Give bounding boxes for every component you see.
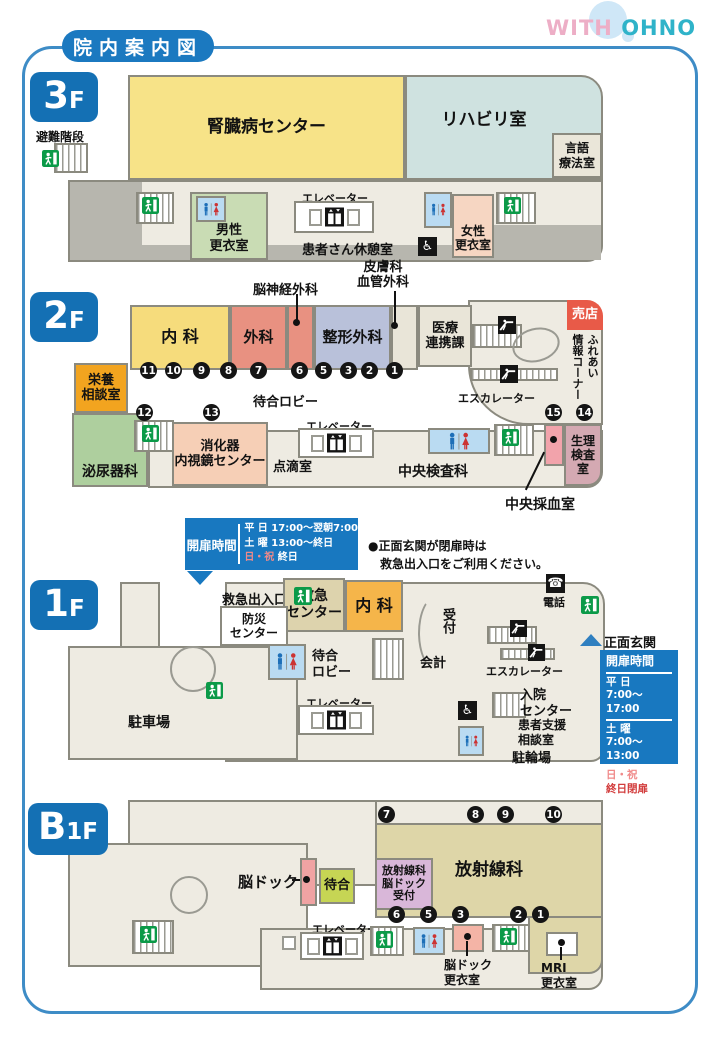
hours-title: 開扉時間 [606,654,672,674]
room-disaster-center: 防災センター [220,606,288,646]
cashier-label: 会計 [420,652,446,671]
bicycle-parking-label: 駐輪場 [512,747,551,766]
wall-block [492,225,601,247]
escalator-icon [500,365,518,383]
waiting-lobby-label-2f: 待合ロビー [253,391,318,410]
elevator-icon [327,709,346,731]
mri-locker-label: MRI更衣室 [541,961,577,991]
iv-room-label: 点滴室 [273,456,312,475]
room-emergency-center: 救急センター [283,578,345,632]
exit-icon [376,931,393,948]
callout-dot [391,322,398,329]
exam-room-number: 7 [250,362,267,379]
exam-room-number: 7 [378,806,395,823]
floor-label-1f: 1F [30,580,98,630]
exit-icon [294,587,312,605]
phone-label: 電話 [543,594,565,610]
exit-icon [42,150,59,167]
exam-room-number: 2 [510,906,527,923]
exam-room-number: 11 [140,362,157,379]
corridor-b1f-north [375,800,603,825]
exam-room-number: 9 [497,806,514,823]
stairs-1f-mid [372,638,404,680]
room-endoscopy-center: 消化器内視鏡センター [172,422,268,486]
room-surgery: 外科 [230,305,287,370]
info-corner-label-1: ふれあい [584,334,600,396]
restroom-icon [196,196,226,222]
escalator-icon [498,316,516,334]
main-entrance-marker [580,634,602,646]
room-neurosurgery [287,305,314,370]
exam-room-number: 5 [420,906,437,923]
exam-room-number: 3 [340,362,357,379]
evacuation-stairs-label: 避難階段 [36,128,84,145]
parking-label: 駐車場 [128,712,170,732]
room-speech-therapy: 言語療法室 [552,133,602,178]
patient-support-label: 患者支援相談室 [518,718,566,748]
exam-room-number: 8 [467,806,484,823]
restroom-icon [428,428,490,454]
exam-room-number: 12 [136,404,153,421]
holiday-label: 日・祝 [606,769,672,783]
callout-dot [303,876,310,883]
callout-dot [464,933,471,940]
brain-dock-locker-label: 脳ドック更衣室 [444,958,492,988]
exit-icon [581,596,599,614]
room-physiology-lab: 生理検査室 [564,424,602,486]
callout-line [466,941,468,956]
escalator-label-2f: エスカレーター [458,390,535,406]
exit-icon [500,928,517,945]
room-nutrition-consultation: 栄養相談室 [74,363,128,413]
callout-dot [550,436,557,443]
room-orthopedics: 整形外科 [314,305,391,370]
elevator-1f [298,705,374,735]
room-internal-medicine-1f: 内 科 [345,580,403,632]
neurosurgery-callout-label: 脳神経外科 [253,279,318,298]
blood-collection-label: 中央採血室 [505,494,575,514]
pillar-graphic [170,876,208,914]
logo-with-text: WITH [546,16,613,40]
with-ohno-logo: WITH OHNO [546,16,696,40]
room-kidney-disease-center: 腎臓病センター [128,75,405,180]
entrance-notice: ●正面玄関が閉扉時は救急出入口をご利用ください。 [368,537,548,573]
room-blood-collection [544,424,564,466]
restroom-icon [424,192,452,228]
hospital-floor-guide: 院内案内図 WITH OHNO 3F 避難階段 腎臓病センター リハビリ室 言語… [0,0,724,1039]
wall-block [70,182,142,260]
callout-line [560,947,562,960]
restroom-icon [268,644,306,680]
exit-icon [504,197,521,214]
restroom-icon [458,726,484,756]
holiday-closed: 終日閉扉 [606,783,672,797]
elevator-icon [323,935,342,957]
brain-dock-label: 脳ドック [238,871,298,892]
room-womens-locker: 女性更衣室 [452,194,494,258]
floor-3f-number: 3 [43,72,69,120]
exam-room-number: 15 [545,404,562,421]
exit-icon [502,429,519,446]
restroom-icon [413,927,445,955]
callout-line [296,294,298,322]
exam-room-number: 10 [545,806,562,823]
elevator-2f [298,428,374,458]
room-internal-medicine-2f: 内 科 [130,305,230,370]
room-medical-cooperation: 医療連携課 [418,305,472,367]
waiting-lobby-label-1f: 待合ロビー [312,649,351,682]
exit-icon [142,197,159,214]
exit-icon [140,926,157,943]
room-shop: 売店 [567,300,603,330]
elevator-3f [294,201,374,233]
room-waiting-b1f: 待合 [319,868,355,904]
exam-room-number: 6 [388,906,405,923]
exam-room-number: 2 [361,362,378,379]
exam-room-number: 6 [291,362,308,379]
escalator-icon [528,644,545,661]
exam-room-number: 1 [386,362,403,379]
door-hours-sign-emergency: 開扉時間 平 日 17:00〜翌朝7:00 土 曜 13:00〜終日 日・祝 終… [185,518,358,570]
patients-lounge-label: 患者さん休憩室 [302,239,393,258]
exit-icon [206,682,223,699]
exam-room-number: 13 [203,404,220,421]
floor-label-2f: 2F [30,292,98,342]
exam-room-number: 5 [315,362,332,379]
exam-room-number: 8 [220,362,237,379]
wheelchair-icon: ♿ [458,701,477,720]
floor-label-b1f: B1F [28,803,108,855]
evacuation-stairs-graphic [54,143,88,173]
escalator-icon [510,620,527,637]
exam-room-number: 10 [165,362,182,379]
small-room-graphic [282,936,296,950]
page-title: 院内案内図 [62,30,214,62]
admission-center-label: 入院センター [520,688,572,721]
floor-label-3f: 3F [30,72,98,122]
logo-ohno-text: OHNO [621,16,696,40]
exam-room-number: 1 [532,906,549,923]
central-lab-label: 中央検査科 [398,461,468,481]
elevator-icon [325,206,344,228]
callout-dot [293,319,300,326]
dermatology-vascular-callout-label: 皮膚科血管外科 [357,261,409,291]
wheelchair-icon: ♿ [418,237,437,256]
elevator-b1f [300,932,364,960]
floor-3f-suffix: F [69,78,85,124]
holiday-label: 日・祝 [244,552,274,563]
callout-dot [558,939,565,946]
room-radiology-reception: 放射線科脳ドック受付 [375,858,433,910]
exam-room-number: 9 [193,362,210,379]
elevator-icon [327,432,346,454]
hours-title: 開扉時間 [185,535,238,554]
door-hours-sign-main: 開扉時間 平 日7:00〜17:00 土 曜7:00〜13:00 日・祝終日閉扉 [600,650,678,764]
phone-icon: ☎ [546,574,565,593]
exit-icon [142,425,159,442]
exam-room-number: 14 [576,404,593,421]
exam-room-number: 3 [452,906,469,923]
main-entrance-label: 正面玄関 [604,632,656,651]
emergency-entrance-marker [187,571,213,585]
reception-label: 受付 [438,608,457,650]
escalator-label-1f: エスカレーター [486,663,563,679]
callout-line [394,291,396,325]
